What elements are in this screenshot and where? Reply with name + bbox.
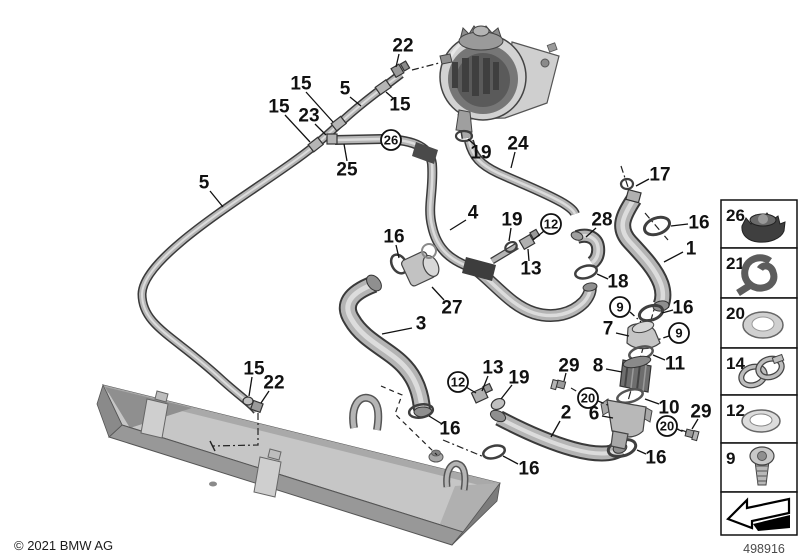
svg-text:19: 19 — [508, 368, 529, 389]
callout-15[interactable]: 15 — [243, 359, 265, 397]
callout-9[interactable]: 9 — [657, 323, 689, 343]
sidebar-item-9[interactable]: 9 — [721, 443, 797, 492]
sidebar-item-26[interactable]: 26 — [721, 200, 797, 248]
svg-text:26: 26 — [384, 133, 398, 148]
callout-12[interactable]: 12 — [448, 372, 476, 393]
bleed-fittings-upper — [519, 229, 539, 249]
radiator — [97, 385, 500, 545]
svg-text:15: 15 — [290, 74, 312, 95]
svg-text:3: 3 — [416, 314, 427, 335]
svg-text:19: 19 — [470, 143, 491, 164]
callout-28[interactable]: 28 — [586, 210, 613, 238]
callout-13[interactable]: 13 — [520, 249, 541, 280]
svg-text:12: 12 — [451, 375, 465, 390]
callout-15[interactable]: 15 — [386, 92, 411, 116]
callout-8[interactable]: 8 — [593, 356, 622, 377]
callout-18[interactable]: 18 — [597, 272, 629, 293]
callout-12[interactable]: 12 — [533, 214, 561, 240]
callout-25[interactable]: 25 — [336, 144, 358, 181]
svg-text:15: 15 — [268, 97, 290, 118]
svg-text:1: 1 — [686, 239, 697, 260]
callout-26[interactable]: 26 — [381, 130, 401, 150]
fitting-27 — [400, 244, 442, 287]
svg-text:16: 16 — [645, 448, 666, 469]
sidebar-item-20[interactable]: 20 — [721, 298, 797, 348]
svg-text:5: 5 — [340, 79, 351, 100]
callout-16[interactable]: 16 — [503, 456, 540, 480]
nav-previous-diagram[interactable] — [721, 492, 797, 535]
callout-19[interactable]: 19 — [501, 368, 530, 400]
callout-16[interactable]: 16 — [429, 416, 461, 440]
sidebar-item-number: 26 — [726, 206, 745, 225]
svg-text:15: 15 — [389, 95, 411, 116]
svg-text:24: 24 — [507, 134, 529, 155]
svg-text:27: 27 — [441, 298, 462, 319]
callout-16[interactable]: 16 — [637, 448, 667, 469]
svg-text:19: 19 — [501, 210, 522, 231]
coolant-hose-3 — [348, 284, 422, 410]
callout-9[interactable]: 9 — [610, 297, 641, 322]
callout-7[interactable]: 7 — [603, 319, 629, 340]
bleed-fittings-lower — [471, 384, 506, 412]
coolant-hose-1 — [623, 199, 663, 305]
coolant-pipe-25-4 — [335, 139, 476, 269]
parts-sidebar: 26 21 20 14 — [721, 200, 797, 535]
callout-4[interactable]: 4 — [450, 203, 479, 231]
parts-diagram-page: 2215515152326255192417419122816113181627… — [0, 0, 800, 560]
svg-text:20: 20 — [660, 419, 674, 434]
svg-text:17: 17 — [649, 165, 670, 186]
svg-text:23: 23 — [298, 106, 319, 127]
callout-1[interactable]: 1 — [664, 239, 697, 263]
expansion-tank — [440, 26, 559, 132]
svg-text:13: 13 — [482, 358, 503, 379]
sidebar-item-12[interactable]: 12 — [721, 395, 797, 443]
svg-text:16: 16 — [383, 227, 404, 248]
callout-19[interactable]: 19 — [501, 210, 522, 242]
sidebar-item-number: 12 — [726, 401, 745, 420]
gasket-ring-icon — [743, 312, 783, 338]
sidebar-item-number: 9 — [726, 449, 735, 468]
callout-29[interactable]: 29 — [690, 402, 711, 430]
tank-left-nipple — [440, 54, 452, 64]
svg-text:2: 2 — [561, 403, 572, 424]
svg-text:9: 9 — [675, 326, 682, 341]
svg-text:6: 6 — [589, 404, 600, 425]
svg-text:9: 9 — [616, 300, 623, 315]
callout-19[interactable]: 19 — [468, 139, 492, 164]
svg-text:29: 29 — [690, 402, 711, 423]
filter-8 — [620, 354, 652, 392]
svg-text:5: 5 — [199, 173, 210, 194]
sidebar-item-14[interactable]: 14 — [721, 348, 797, 395]
svg-text:8: 8 — [593, 356, 604, 377]
tee-connector — [462, 257, 496, 281]
radiator-nipple — [429, 450, 443, 462]
callout-27[interactable]: 27 — [432, 287, 463, 319]
callout-5[interactable]: 5 — [199, 173, 223, 208]
svg-text:16: 16 — [439, 419, 460, 440]
tank-bottom-port — [456, 110, 472, 132]
coolant-pipe-5 — [142, 74, 401, 411]
callout-16[interactable]: 16 — [671, 213, 710, 234]
sidebar-item-21[interactable]: 21 — [721, 248, 797, 298]
o-ring-icon — [742, 410, 780, 432]
pipe-wrap — [412, 142, 438, 164]
svg-text:13: 13 — [520, 259, 541, 280]
copyright-text: © 2021 BMW AG — [14, 538, 113, 553]
svg-text:4: 4 — [468, 203, 479, 224]
svg-text:22: 22 — [263, 373, 284, 394]
svg-text:16: 16 — [518, 459, 539, 480]
housing-6 — [601, 399, 652, 449]
tank-cap — [459, 26, 503, 50]
callout-17[interactable]: 17 — [636, 165, 671, 187]
svg-text:7: 7 — [603, 319, 614, 340]
callout-2[interactable]: 2 — [551, 403, 571, 438]
svg-text:11: 11 — [665, 354, 686, 375]
callout-22[interactable]: 22 — [261, 373, 285, 404]
svg-text:15: 15 — [243, 359, 265, 380]
callout-16[interactable]: 16 — [383, 227, 404, 259]
svg-text:28: 28 — [591, 210, 612, 231]
callout-11[interactable]: 11 — [653, 354, 685, 375]
svg-text:18: 18 — [607, 272, 628, 293]
callout-29[interactable]: 29 — [558, 356, 579, 382]
svg-text:22: 22 — [392, 36, 413, 57]
diagram-number: 498916 — [743, 542, 785, 556]
callout-24[interactable]: 24 — [507, 134, 529, 169]
svg-text:29: 29 — [558, 356, 579, 377]
sidebar-item-number: 20 — [726, 304, 745, 323]
coolant-hose-2 — [499, 418, 620, 454]
callout-3[interactable]: 3 — [382, 314, 426, 335]
svg-text:16: 16 — [672, 298, 693, 319]
callout-20[interactable]: 20 — [657, 416, 686, 436]
svg-text:12: 12 — [544, 217, 558, 232]
svg-text:16: 16 — [688, 213, 709, 234]
svg-text:25: 25 — [336, 160, 358, 181]
